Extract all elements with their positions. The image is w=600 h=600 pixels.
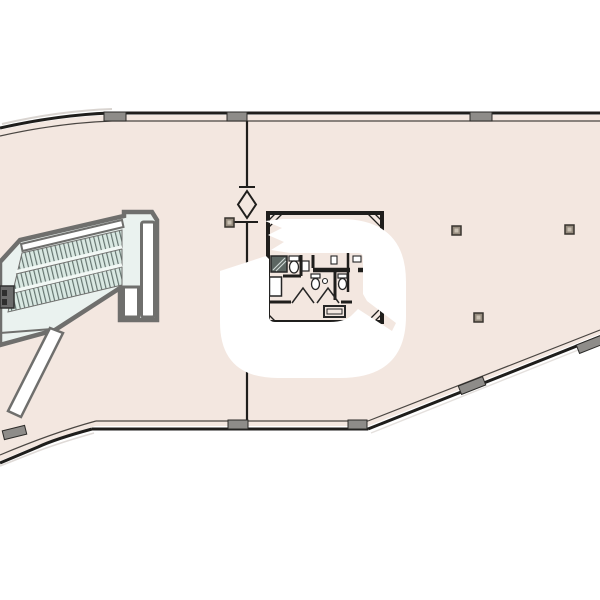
stair-lower-landing	[124, 287, 139, 317]
wall-mullion	[104, 112, 126, 121]
fixture-icon	[353, 256, 361, 262]
floor-plan-drawing	[0, 0, 600, 600]
column-marker-core	[228, 221, 232, 225]
wall-mullion	[470, 112, 492, 121]
floor-plan-canvas	[0, 0, 600, 600]
stair-side-landing	[142, 222, 155, 317]
column-marker-core	[568, 228, 572, 232]
core-step-alcove	[324, 306, 345, 317]
shower-stall-icon	[271, 256, 287, 272]
toilet-icon	[338, 274, 347, 290]
column-marker-core	[455, 229, 459, 233]
sink-icon	[302, 261, 309, 271]
basin-icon	[323, 279, 328, 284]
cabinet-icon	[270, 277, 282, 296]
toilet-icon	[289, 256, 299, 273]
column-marker-core	[477, 316, 481, 320]
wall-mullion	[227, 112, 247, 121]
wall-mullion	[348, 420, 367, 429]
toilet-icon	[311, 274, 320, 290]
fixture-icon	[331, 256, 337, 264]
wall-mullion	[228, 420, 248, 429]
stair-machine-block	[0, 286, 14, 308]
